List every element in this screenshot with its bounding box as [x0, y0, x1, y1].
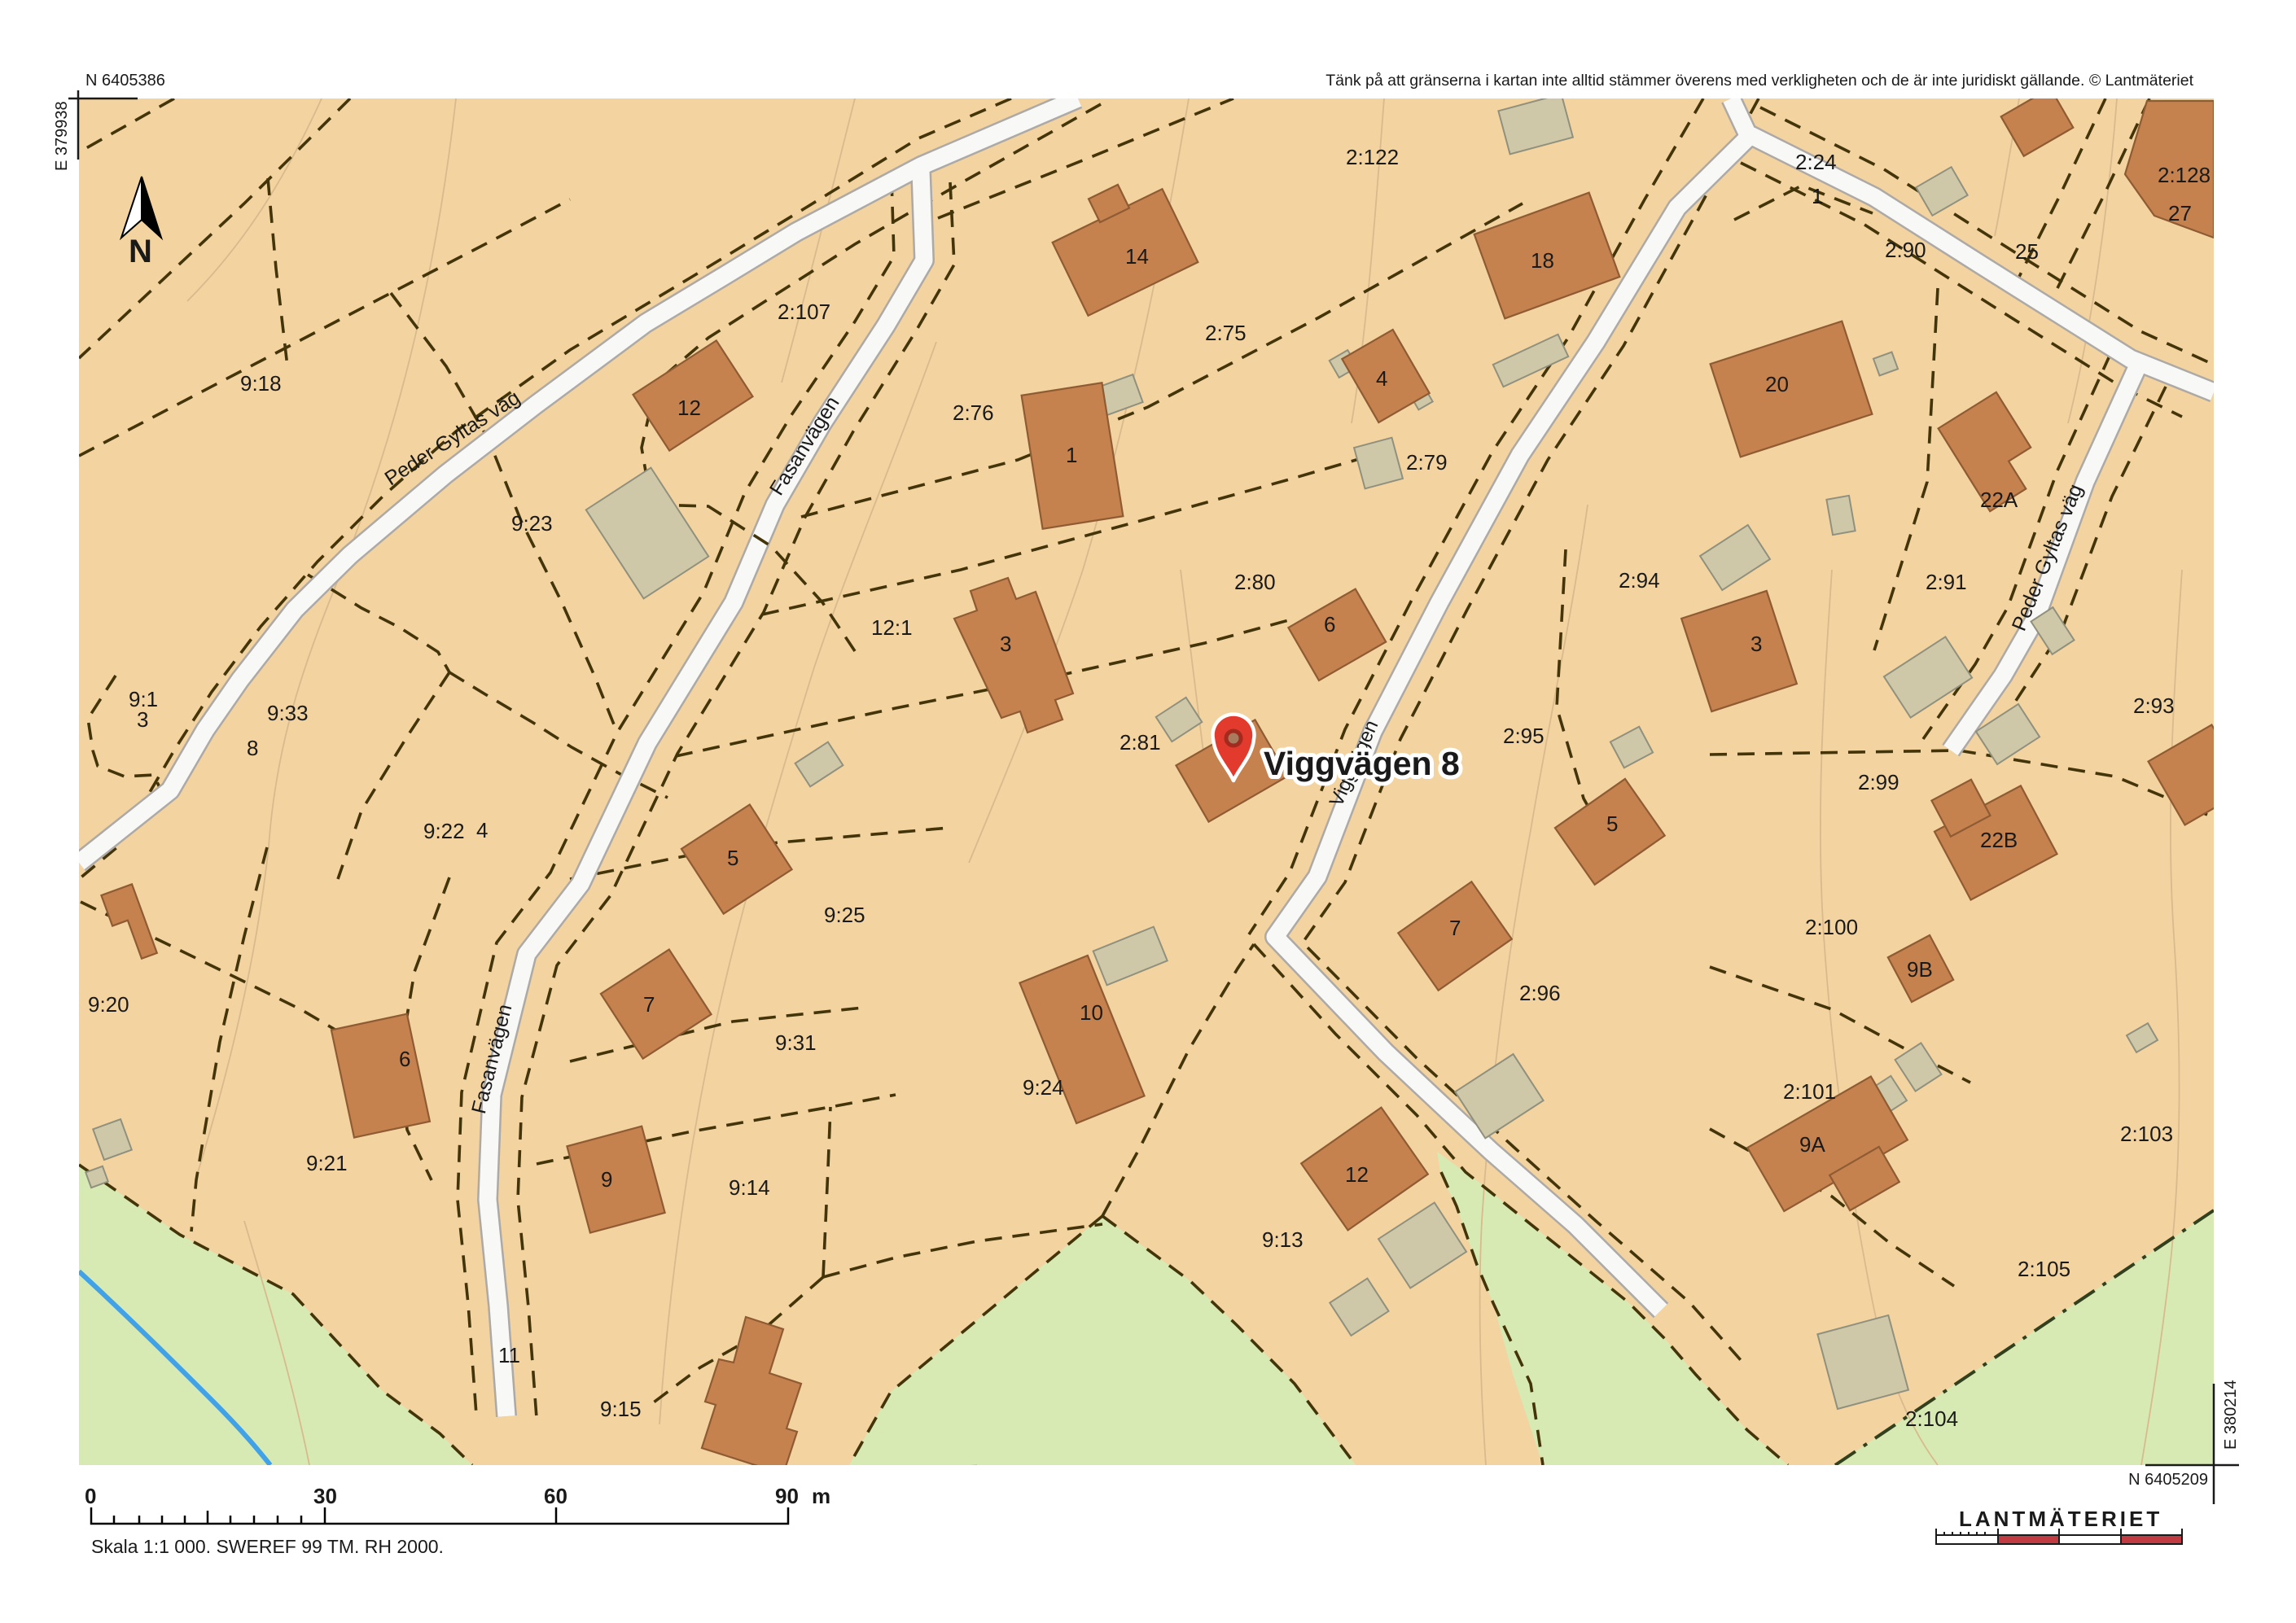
- svg-text:N 6405386: N 6405386: [85, 72, 165, 90]
- svg-text:9:25: 9:25: [824, 903, 865, 927]
- svg-text:22B: 22B: [1980, 828, 2018, 852]
- svg-text:E 379938: E 379938: [53, 101, 71, 171]
- svg-text:9:14: 9:14: [729, 1175, 770, 1200]
- svg-text:LANTMÄTERIET: LANTMÄTERIET: [1959, 1507, 2162, 1531]
- svg-text:30: 30: [313, 1484, 337, 1508]
- svg-text:2:99: 2:99: [1858, 770, 1899, 794]
- svg-text:9:31: 9:31: [775, 1030, 817, 1055]
- svg-text:11: 11: [498, 1343, 520, 1367]
- svg-text:1: 1: [1812, 184, 1823, 208]
- svg-text:2:103: 2:103: [2120, 1122, 2173, 1146]
- svg-text:3: 3: [137, 707, 148, 732]
- svg-text:9B: 9B: [1907, 957, 1933, 982]
- svg-text:2:93: 2:93: [2133, 693, 2175, 718]
- svg-text:25: 25: [2015, 239, 2039, 264]
- svg-text:7: 7: [1449, 916, 1461, 940]
- svg-text:12:1: 12:1: [871, 615, 913, 640]
- svg-text:2:75: 2:75: [1205, 321, 1247, 345]
- svg-text:2:100: 2:100: [1805, 915, 1858, 939]
- svg-text:9:24: 9:24: [1023, 1075, 1064, 1100]
- svg-text:6: 6: [1324, 612, 1335, 637]
- svg-text:4: 4: [476, 818, 488, 842]
- svg-text:Skala 1:1 000. SWEREF 99 TM. R: Skala 1:1 000. SWEREF 99 TM. RH 2000.: [91, 1536, 444, 1557]
- svg-text:6: 6: [399, 1047, 410, 1071]
- svg-text:9:20: 9:20: [88, 992, 129, 1017]
- svg-text:2:94: 2:94: [1619, 568, 1660, 593]
- svg-text:9:15: 9:15: [600, 1397, 642, 1421]
- svg-text:4: 4: [1376, 366, 1387, 391]
- svg-text:2:91: 2:91: [1926, 570, 1967, 594]
- svg-text:27: 27: [2168, 201, 2192, 225]
- svg-text:9:33: 9:33: [267, 701, 309, 725]
- svg-text:2:107: 2:107: [778, 300, 830, 324]
- svg-text:1: 1: [1066, 443, 1077, 467]
- svg-text:2:96: 2:96: [1519, 981, 1561, 1005]
- svg-text:2:122: 2:122: [1346, 145, 1399, 169]
- svg-text:3: 3: [1750, 632, 1762, 656]
- svg-text:N 6405209: N 6405209: [2128, 1471, 2208, 1489]
- svg-text:2:95: 2:95: [1503, 724, 1545, 748]
- svg-text:9:23: 9:23: [511, 511, 553, 536]
- svg-text:5: 5: [727, 846, 738, 870]
- svg-text:9:18: 9:18: [240, 371, 282, 396]
- svg-text:2:104: 2:104: [1905, 1406, 1958, 1431]
- svg-text:2:101: 2:101: [1783, 1079, 1836, 1104]
- svg-text:20: 20: [1765, 372, 1789, 396]
- svg-text:10: 10: [1080, 1000, 1103, 1025]
- svg-text:7: 7: [643, 992, 655, 1017]
- svg-text:9A: 9A: [1799, 1132, 1825, 1157]
- svg-text:2:81: 2:81: [1120, 730, 1161, 755]
- svg-text:9:22: 9:22: [423, 819, 465, 843]
- svg-text:12: 12: [677, 396, 701, 420]
- svg-text:2:76: 2:76: [953, 400, 994, 425]
- svg-text:N: N: [129, 234, 152, 269]
- svg-text:E 380214: E 380214: [2222, 1380, 2240, 1450]
- svg-text:2:80: 2:80: [1234, 570, 1276, 594]
- svg-text:2:79: 2:79: [1406, 450, 1448, 475]
- svg-text:5: 5: [1606, 811, 1618, 836]
- svg-text:9:21: 9:21: [306, 1151, 348, 1175]
- svg-text:60: 60: [544, 1484, 567, 1508]
- svg-text:9: 9: [601, 1167, 612, 1192]
- svg-text:22A: 22A: [1980, 488, 2018, 512]
- svg-text:2:24: 2:24: [1795, 150, 1837, 174]
- svg-text:2:105: 2:105: [2018, 1257, 2070, 1281]
- svg-text:8: 8: [247, 736, 258, 760]
- svg-text:14: 14: [1125, 244, 1149, 269]
- svg-text:9:13: 9:13: [1262, 1227, 1304, 1252]
- svg-text:90: 90: [775, 1484, 799, 1508]
- svg-text:12: 12: [1345, 1162, 1369, 1187]
- svg-text:0: 0: [85, 1484, 96, 1508]
- svg-text:Viggvägen 8: Viggvägen 8: [1264, 745, 1460, 782]
- svg-text:3: 3: [1000, 632, 1011, 656]
- svg-text:m: m: [812, 1484, 830, 1508]
- svg-text:18: 18: [1531, 248, 1554, 273]
- svg-text:2:90: 2:90: [1885, 238, 1926, 262]
- svg-text:Tänk på att gränserna i kartan: Tänk på att gränserna i kartan inte allt…: [1325, 72, 2193, 90]
- svg-text:2:128: 2:128: [2158, 163, 2211, 187]
